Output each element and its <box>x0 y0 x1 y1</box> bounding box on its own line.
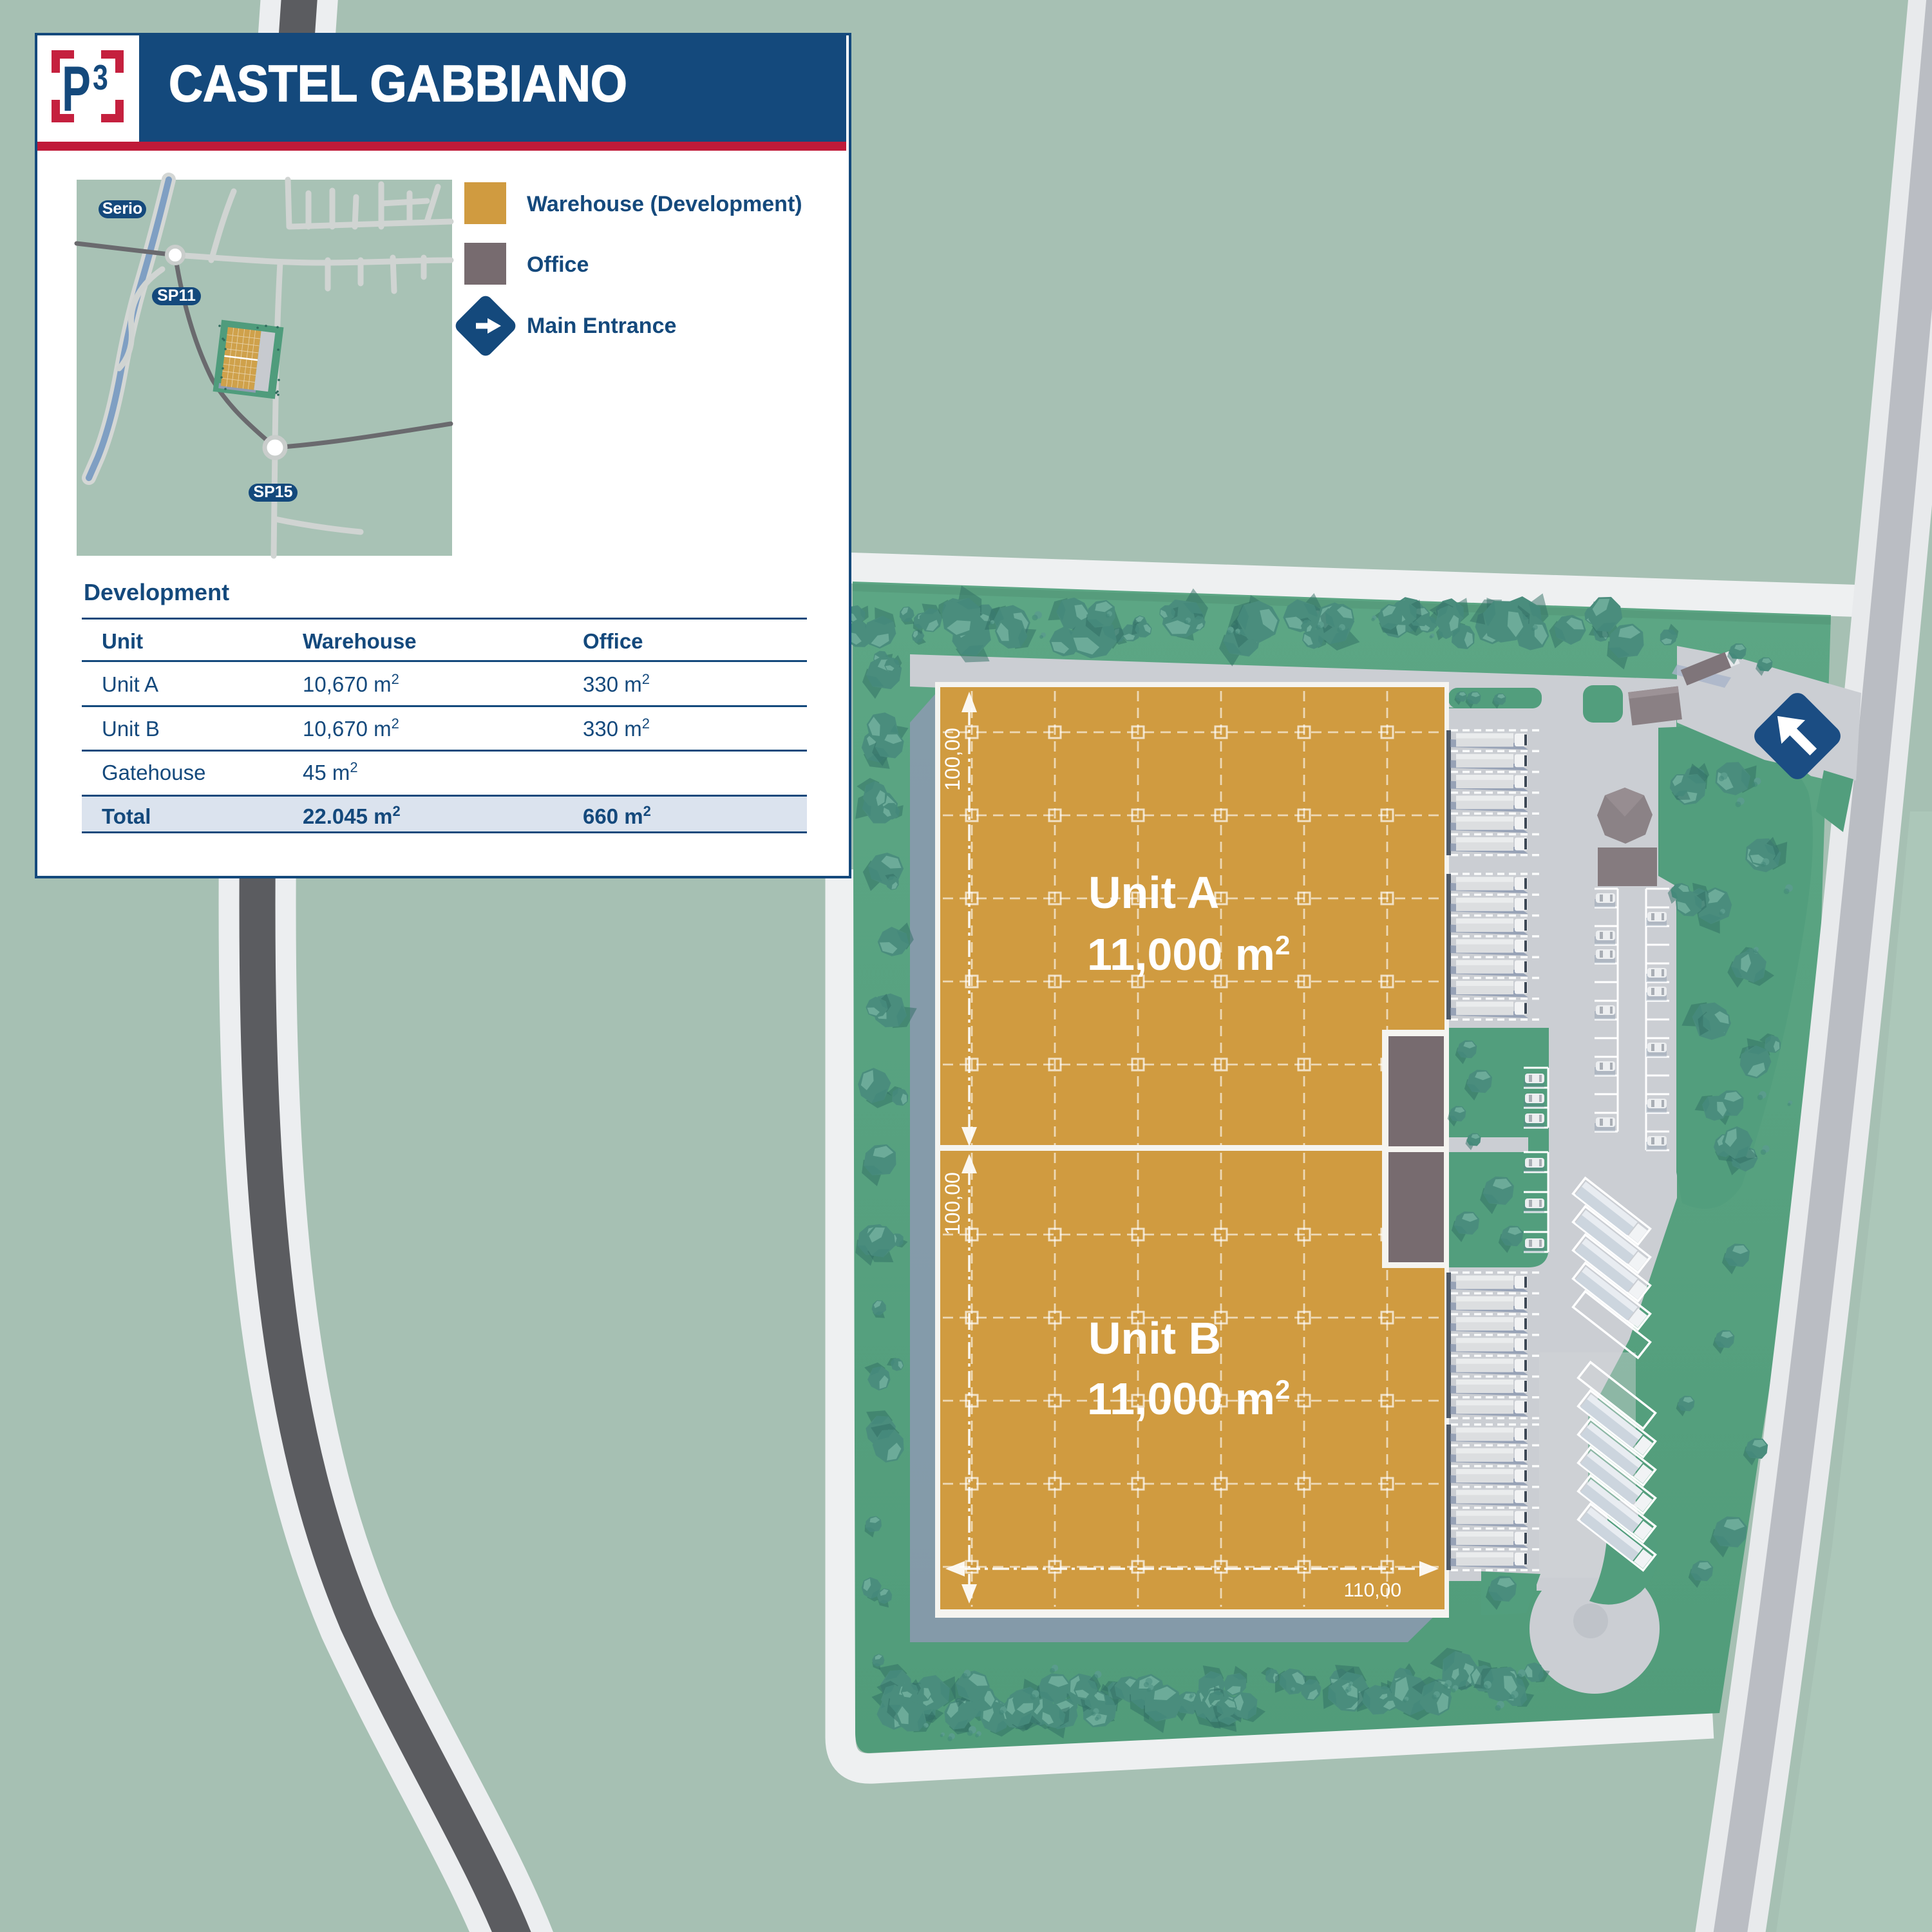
svg-text:Unit B: Unit B <box>1088 1313 1221 1363</box>
svg-text:10,670 m2: 10,670 m2 <box>303 671 399 696</box>
svg-text:P: P <box>62 53 91 124</box>
svg-text:CASTEL GABBIANO: CASTEL GABBIANO <box>169 55 627 112</box>
svg-text:Unit B: Unit B <box>102 717 160 741</box>
svg-text:Unit A: Unit A <box>102 672 158 696</box>
svg-text:Unit A: Unit A <box>1088 867 1219 918</box>
svg-text:Serio: Serio <box>102 200 143 218</box>
svg-text:11,000 m2: 11,000 m2 <box>1087 929 1290 980</box>
svg-text:11,000 m2: 11,000 m2 <box>1087 1374 1290 1424</box>
svg-text:660 m2: 660 m2 <box>583 803 651 828</box>
svg-text:Warehouse: Warehouse <box>303 629 417 653</box>
svg-text:22.045 m2: 22.045 m2 <box>303 803 401 828</box>
svg-text:3: 3 <box>93 58 108 97</box>
svg-text:Development: Development <box>84 579 229 605</box>
svg-text:Unit: Unit <box>102 629 143 653</box>
svg-text:Main Entrance: Main Entrance <box>527 314 676 338</box>
svg-text:SP15: SP15 <box>253 483 292 501</box>
svg-text:330 m2: 330 m2 <box>583 715 650 741</box>
svg-text:Office: Office <box>583 629 643 653</box>
svg-text:Gatehouse: Gatehouse <box>102 761 205 784</box>
svg-text:Office: Office <box>527 252 589 277</box>
svg-text:10,670 m2: 10,670 m2 <box>303 715 399 741</box>
svg-text:330 m2: 330 m2 <box>583 671 650 696</box>
svg-text:Total: Total <box>102 804 151 828</box>
svg-text:110,00: 110,00 <box>1343 1580 1401 1601</box>
svg-text:Warehouse (Development): Warehouse (Development) <box>527 192 802 216</box>
svg-text:SP11: SP11 <box>157 287 196 305</box>
svg-text:100,00: 100,00 <box>941 1172 964 1235</box>
svg-text:100,00: 100,00 <box>941 728 964 791</box>
svg-text:45 m2: 45 m2 <box>303 759 358 784</box>
